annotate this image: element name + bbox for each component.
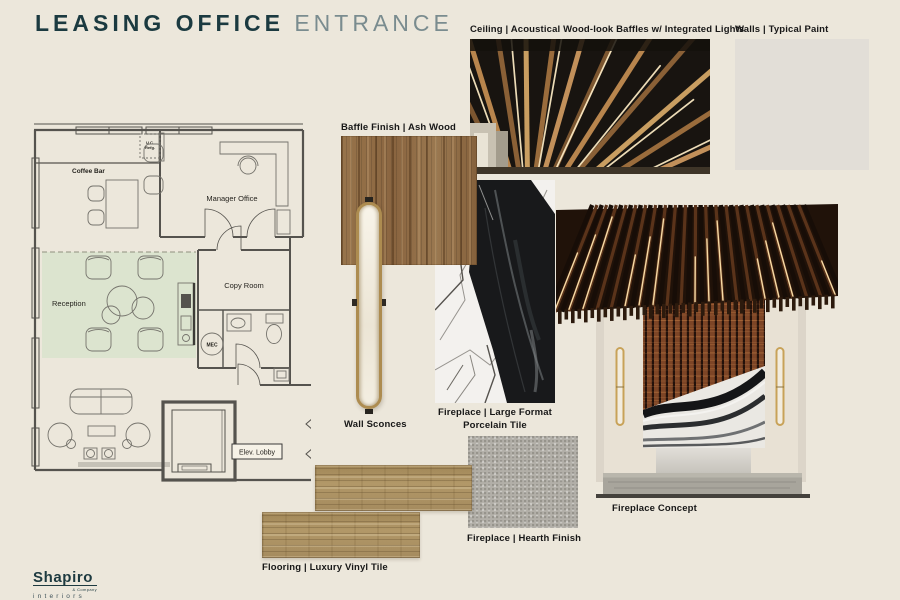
- concept-firebox: [656, 448, 751, 473]
- fireplace-concept-rendering: [556, 200, 838, 498]
- manager-office-label: Manager Office: [206, 194, 257, 203]
- wall-sconces-label: Wall Sconces: [344, 419, 407, 430]
- sconce-left-mount: [352, 299, 357, 306]
- brand-division: interiors: [33, 593, 97, 600]
- page-title-primary: LEASING OFFICE: [35, 10, 284, 36]
- page-title: LEASING OFFICE ENTRANCE: [35, 10, 453, 37]
- elevator: [163, 402, 235, 480]
- concept-hearth-bench: [596, 473, 810, 498]
- mec-label: MEC: [206, 343, 218, 349]
- fireplace-concept-label: Fireplace Concept: [612, 503, 697, 514]
- brand-name: Shapiro: [33, 570, 97, 585]
- mec-room: MEC: [201, 333, 223, 355]
- page-title-secondary: ENTRANCE: [294, 10, 453, 36]
- coffee-bar-area: U.C. Refg. Coffee Bar: [72, 133, 164, 175]
- sconce-bottom-cap: [365, 409, 373, 414]
- walls-label: Walls | Typical Paint: [735, 24, 828, 35]
- manager-office: Manager Office: [144, 142, 290, 234]
- workstation-furniture: [88, 180, 138, 228]
- manager-office-furniture: [144, 142, 290, 234]
- copy-room-label: Copy Room: [224, 281, 264, 290]
- reception-label: Reception: [52, 299, 86, 308]
- brand-logo: Shapiro & Company interiors: [33, 570, 97, 600]
- wall-sconce-sample: [356, 202, 382, 409]
- baffle-finish-label: Baffle Finish | Ash Wood: [341, 122, 456, 133]
- coffee-bar-label: Coffee Bar: [72, 168, 105, 175]
- ceiling-baffles-photo: [470, 39, 710, 174]
- flooring-label: Flooring | Luxury Vinyl Tile: [262, 562, 388, 573]
- fireplace-tile-label-line2: Porcelain Tile: [420, 419, 570, 432]
- restroom-fixtures: [227, 314, 283, 344]
- presentation-board: LEASING OFFICE ENTRANCE: [0, 0, 900, 600]
- floor-plan-drawing: U.C. Refg. Coffee Bar Manager Office Cop…: [26, 118, 311, 503]
- concept-wall-shade-left: [596, 300, 604, 482]
- sconce-top-cap: [365, 197, 373, 202]
- fireplace-tile-label: Fireplace | Large Format Porcelain Tile: [420, 406, 570, 433]
- elev-lobby-label: Elev. Lobby: [239, 450, 276, 457]
- sconce-right-mount: [382, 299, 387, 306]
- wall-fixture: [274, 368, 289, 381]
- lounge-furniture: [48, 389, 170, 467]
- hearth-finish-label: Fireplace | Hearth Finish: [467, 533, 581, 544]
- concept-wall-shade-right: [798, 300, 806, 482]
- ceiling-label: Ceiling | Acoustical Wood-look Baffles w…: [470, 24, 744, 35]
- uc-refg-label-line2: Refg.: [145, 145, 155, 150]
- fireplace-tile-label-line1: Fireplace | Large Format: [420, 406, 570, 419]
- elev-lobby: Elev. Lobby: [232, 444, 282, 459]
- lvt-plank-sample-2: [262, 512, 420, 558]
- lvt-plank-sample-1: [315, 465, 472, 511]
- hearth-finish-swatch: [468, 436, 578, 528]
- ceiling-structure-band: [470, 39, 710, 51]
- paint-swatch: [735, 39, 869, 170]
